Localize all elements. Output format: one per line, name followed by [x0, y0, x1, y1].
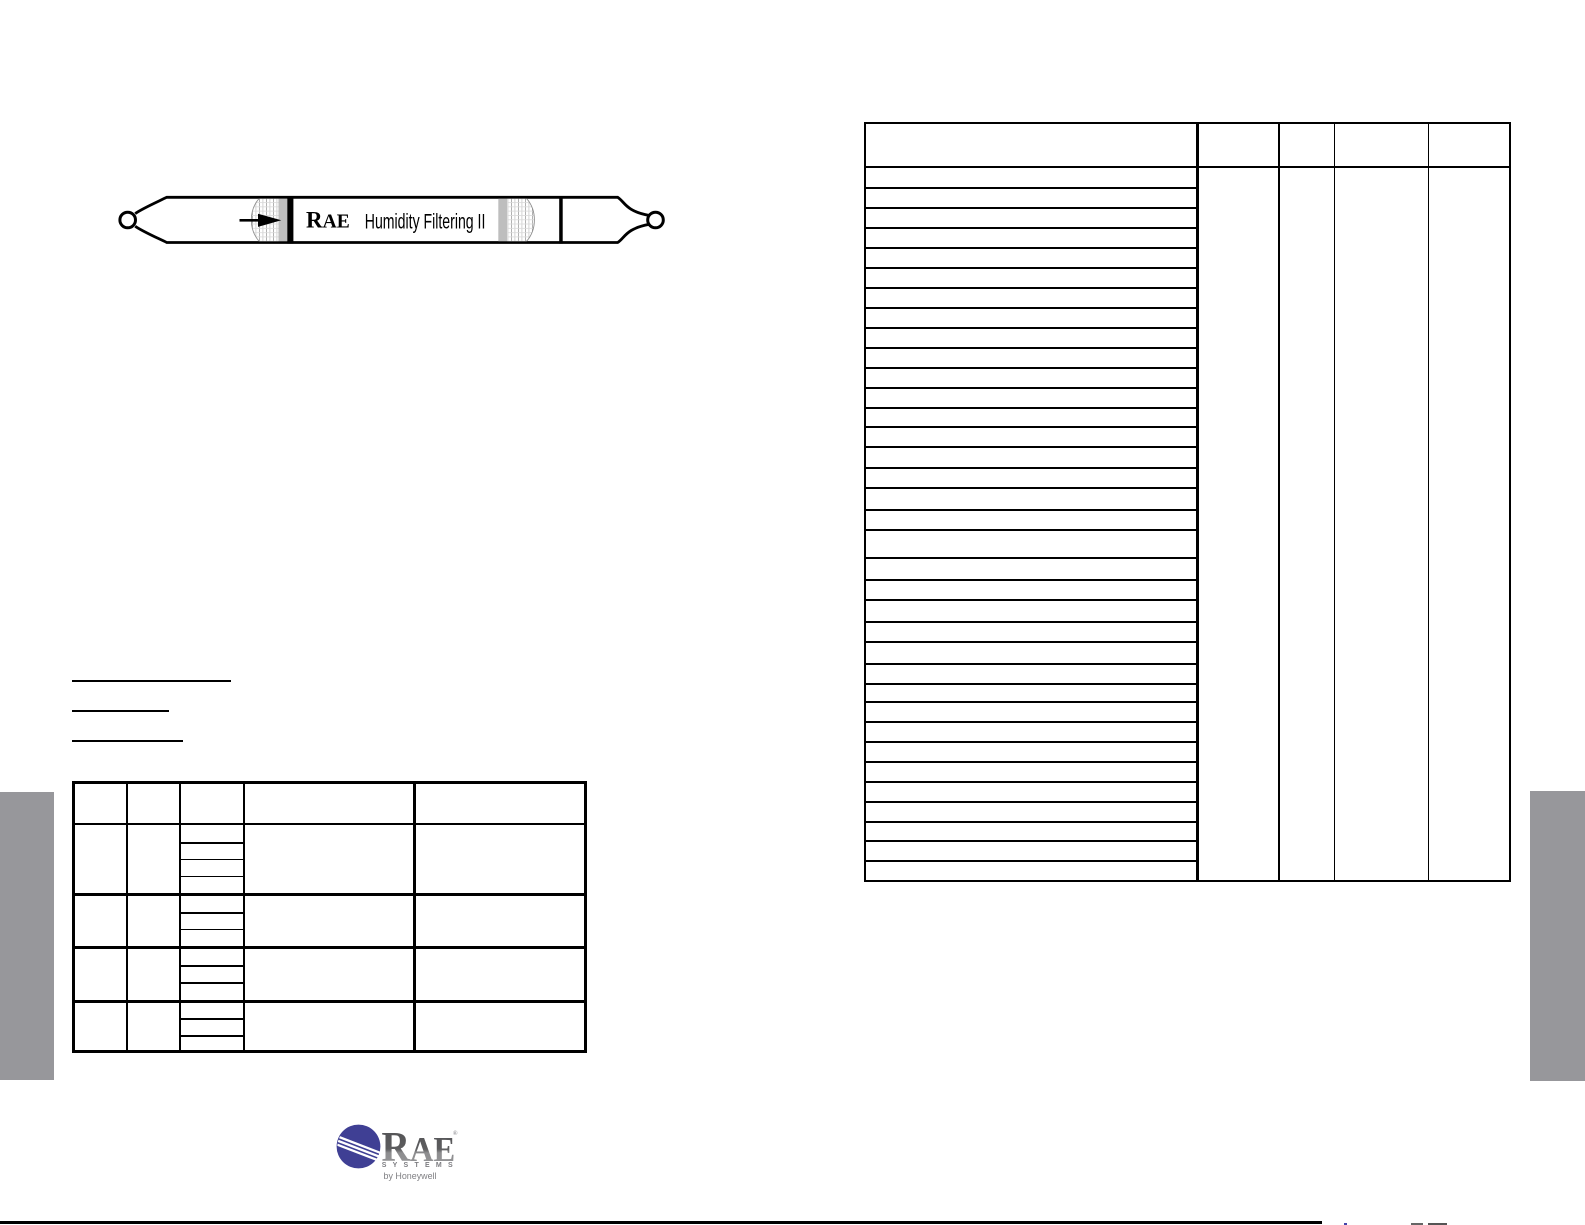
svg-text:®: ® [453, 1130, 458, 1137]
svg-text:Humidity Filtering II: Humidity Filtering II [365, 210, 486, 233]
svg-text:RAE: RAE [306, 207, 350, 232]
svg-text:by Honeywell: by Honeywell [384, 1171, 437, 1181]
